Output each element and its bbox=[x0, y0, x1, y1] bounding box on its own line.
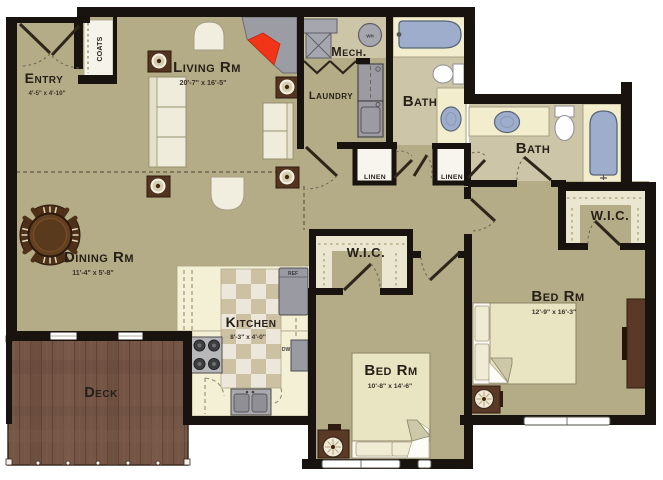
svg-text:4'-5" x 4'-10": 4'-5" x 4'-10" bbox=[28, 90, 65, 97]
svg-text:W.I.C.: W.I.C. bbox=[347, 245, 385, 260]
svg-text:12'-9" x 16'-3": 12'-9" x 16'-3" bbox=[532, 309, 576, 316]
svg-text:Bath: Bath bbox=[403, 93, 438, 110]
svg-text:Bath: Bath bbox=[516, 140, 551, 157]
svg-text:10'-8" x 14'-6": 10'-8" x 14'-6" bbox=[368, 383, 412, 390]
svg-text:COATS: COATS bbox=[97, 36, 104, 61]
svg-text:11'-4" x 5'-8": 11'-4" x 5'-8" bbox=[72, 270, 114, 277]
svg-text:W.I.C.: W.I.C. bbox=[591, 208, 629, 223]
svg-text:DW: DW bbox=[282, 347, 291, 353]
svg-text:Kitchen: Kitchen bbox=[226, 314, 277, 330]
svg-text:Mech.: Mech. bbox=[331, 45, 366, 59]
svg-text:Living Rm: Living Rm bbox=[173, 59, 241, 76]
svg-text:8'-3" x 4'-0": 8'-3" x 4'-0" bbox=[230, 334, 266, 341]
svg-text:LINEN: LINEN bbox=[364, 174, 386, 181]
svg-text:LINEN: LINEN bbox=[441, 174, 463, 181]
svg-text:Laundry: Laundry bbox=[309, 90, 353, 102]
svg-text:Bed Rm: Bed Rm bbox=[531, 288, 584, 305]
svg-text:20'-7" x 16'-5": 20'-7" x 16'-5" bbox=[180, 78, 227, 87]
svg-text:WH: WH bbox=[366, 34, 374, 39]
svg-text:Deck: Deck bbox=[84, 385, 118, 401]
svg-text:REF: REF bbox=[288, 271, 298, 277]
svg-text:Bed Rm: Bed Rm bbox=[364, 362, 417, 379]
svg-text:Entry: Entry bbox=[25, 70, 64, 86]
svg-text:Dining Rm: Dining Rm bbox=[64, 249, 134, 266]
